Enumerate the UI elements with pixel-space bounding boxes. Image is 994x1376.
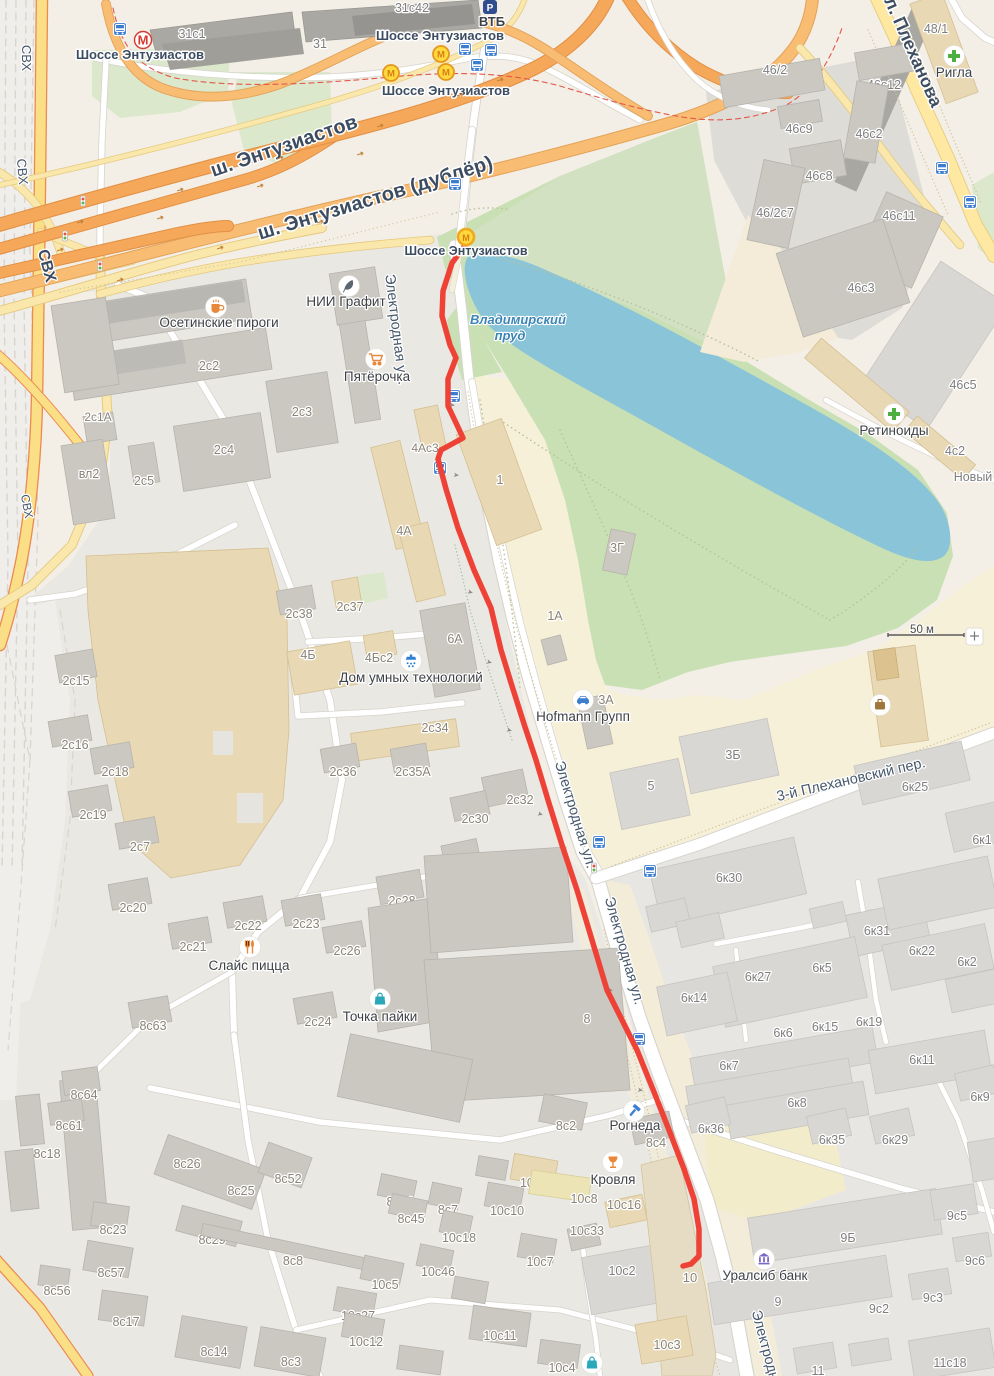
- svg-text:31с42: 31с42: [395, 1, 429, 15]
- svg-text:31: 31: [313, 37, 327, 51]
- svg-text:10с8: 10с8: [570, 1192, 597, 1206]
- svg-text:11: 11: [812, 1364, 825, 1376]
- svg-text:8с8: 8с8: [283, 1254, 303, 1268]
- svg-text:9: 9: [775, 1295, 782, 1309]
- svg-text:2с4: 2с4: [214, 443, 234, 457]
- svg-text:2с37: 2с37: [336, 600, 363, 614]
- svg-text:Шоссе Энтузиастов: Шоссе Энтузиастов: [382, 83, 510, 98]
- svg-text:8с52: 8с52: [274, 1172, 301, 1186]
- svg-text:9с6: 9с6: [965, 1254, 985, 1268]
- svg-text:8: 8: [584, 1012, 591, 1026]
- svg-text:50 м: 50 м: [910, 624, 934, 636]
- svg-text:8с14: 8с14: [200, 1345, 227, 1359]
- svg-text:Точка пайки: Точка пайки: [343, 1009, 418, 1024]
- svg-text:ВТБ: ВТБ: [479, 14, 505, 29]
- svg-text:2с7: 2с7: [130, 840, 150, 854]
- svg-text:2с32: 2с32: [506, 793, 533, 807]
- svg-text:2с20: 2с20: [119, 901, 146, 915]
- svg-text:2с35А: 2с35А: [395, 765, 431, 779]
- svg-text:2с38: 2с38: [285, 607, 312, 621]
- svg-text:6к31: 6к31: [864, 924, 890, 938]
- svg-text:6к22: 6к22: [909, 944, 935, 958]
- svg-text:2с36: 2с36: [329, 765, 356, 779]
- svg-text:10с3: 10с3: [653, 1338, 680, 1352]
- svg-text:Слайс пицца: Слайс пицца: [209, 958, 290, 973]
- svg-text:6к30: 6к30: [716, 871, 742, 885]
- svg-text:6к2: 6к2: [957, 955, 976, 969]
- svg-text:6к6: 6к6: [773, 1026, 792, 1040]
- svg-text:Шоссе Энтузиастов: Шоссе Энтузиастов: [76, 47, 204, 62]
- svg-text:6к19: 6к19: [856, 1015, 882, 1029]
- svg-text:2с22: 2с22: [234, 919, 261, 933]
- svg-text:1А: 1А: [547, 609, 563, 623]
- svg-text:М: М: [387, 69, 395, 80]
- svg-text:8с18: 8с18: [33, 1147, 60, 1161]
- svg-text:10: 10: [683, 1270, 697, 1285]
- svg-text:46с3: 46с3: [847, 281, 874, 295]
- svg-text:10с16: 10с16: [607, 1198, 641, 1212]
- svg-text:Осетинские пироги: Осетинские пироги: [159, 315, 278, 330]
- svg-text:4с2: 4с2: [945, 444, 965, 458]
- svg-text:пруд: пруд: [495, 328, 526, 343]
- svg-text:46/2: 46/2: [763, 63, 787, 77]
- svg-text:6к14: 6к14: [681, 991, 707, 1005]
- svg-text:М: М: [442, 68, 450, 79]
- svg-text:6к5: 6к5: [812, 961, 831, 975]
- svg-text:10с7: 10с7: [526, 1255, 553, 1269]
- svg-text:Hofmann Групп: Hofmann Групп: [536, 709, 630, 724]
- svg-text:6к8: 6к8: [787, 1096, 806, 1110]
- svg-text:8с56: 8с56: [43, 1284, 70, 1298]
- svg-text:46с2: 46с2: [855, 127, 882, 141]
- svg-text:8с57: 8с57: [97, 1266, 124, 1280]
- svg-text:2с18: 2с18: [101, 765, 128, 779]
- svg-text:3Г: 3Г: [610, 541, 624, 555]
- svg-text:6к7: 6к7: [719, 1059, 738, 1073]
- svg-text:46с9: 46с9: [785, 122, 812, 136]
- svg-text:9Б: 9Б: [840, 1231, 855, 1245]
- svg-text:6к1: 6к1: [972, 833, 991, 847]
- svg-text:Ретиноиды: Ретиноиды: [859, 423, 928, 438]
- svg-text:М: М: [437, 50, 445, 61]
- svg-text:Дом умных технологий: Дом умных технологий: [339, 670, 483, 685]
- svg-text:8с4: 8с4: [646, 1136, 666, 1150]
- svg-text:10с46: 10с46: [421, 1265, 455, 1279]
- svg-text:48/1: 48/1: [924, 22, 948, 36]
- svg-text:М: М: [138, 33, 149, 48]
- svg-text:9с3: 9с3: [923, 1291, 943, 1305]
- svg-text:6к11: 6к11: [909, 1053, 934, 1067]
- svg-text:10с10: 10с10: [490, 1204, 524, 1218]
- svg-text:8с17: 8с17: [112, 1315, 139, 1329]
- svg-text:6к9: 6к9: [970, 1090, 989, 1104]
- svg-text:10с33: 10с33: [570, 1224, 604, 1238]
- svg-text:8с23: 8с23: [99, 1223, 126, 1237]
- svg-text:3Б: 3Б: [725, 748, 740, 762]
- svg-text:2с16: 2с16: [61, 738, 88, 752]
- svg-text:2с15: 2с15: [62, 674, 89, 688]
- svg-text:8с26: 8с26: [173, 1157, 200, 1171]
- svg-text:Пятёрочка: Пятёрочка: [344, 369, 411, 384]
- svg-text:Владимирский: Владимирский: [470, 312, 566, 327]
- svg-text:8с25: 8с25: [227, 1184, 254, 1198]
- svg-text:2с23: 2с23: [292, 917, 319, 931]
- svg-text:4Бс2: 4Бс2: [365, 651, 393, 665]
- svg-text:М: М: [462, 233, 470, 243]
- svg-text:4Б: 4Б: [300, 648, 315, 662]
- svg-text:10с18: 10с18: [442, 1231, 476, 1245]
- svg-text:46с11: 46с11: [882, 209, 915, 223]
- svg-text:10с5: 10с5: [371, 1278, 398, 1292]
- svg-text:2с19: 2с19: [79, 808, 106, 822]
- svg-text:4А: 4А: [396, 524, 412, 538]
- svg-text:СВХ: СВХ: [19, 45, 34, 71]
- svg-text:6к36: 6к36: [698, 1122, 724, 1136]
- svg-text:8с61: 8с61: [55, 1119, 82, 1133]
- svg-text:2с3: 2с3: [292, 405, 312, 419]
- svg-text:2с26: 2с26: [333, 944, 360, 958]
- svg-text:Уралсиб банк: Уралсиб банк: [723, 1268, 808, 1283]
- svg-text:2с30: 2с30: [461, 812, 488, 826]
- svg-text:Шоссе Энтузиастов: Шоссе Энтузиастов: [376, 28, 504, 43]
- svg-text:46/2с7: 46/2с7: [756, 206, 794, 220]
- svg-text:Рогнеда: Рогнеда: [610, 1118, 661, 1133]
- svg-text:10с11: 10с11: [483, 1329, 516, 1343]
- svg-text:10с4: 10с4: [548, 1361, 575, 1375]
- svg-text:10с2: 10с2: [608, 1264, 635, 1278]
- svg-text:Новый: Новый: [954, 470, 993, 484]
- svg-text:НИИ Графит: НИИ Графит: [306, 294, 385, 309]
- svg-text:6к35: 6к35: [819, 1133, 845, 1147]
- svg-text:4Ас3: 4Ас3: [411, 441, 439, 455]
- svg-text:2с1А: 2с1А: [84, 410, 111, 424]
- svg-text:9с2: 9с2: [869, 1302, 889, 1316]
- svg-text:46с5: 46с5: [949, 378, 976, 392]
- svg-text:6к15: 6к15: [812, 1020, 838, 1034]
- svg-text:6к27: 6к27: [745, 970, 771, 984]
- svg-text:Р: Р: [487, 3, 494, 14]
- svg-text:2с21: 2с21: [179, 940, 206, 954]
- svg-text:2с2: 2с2: [199, 359, 219, 373]
- svg-text:2с5: 2с5: [134, 474, 154, 488]
- svg-text:6к25: 6к25: [902, 780, 928, 794]
- svg-text:10с12: 10с12: [349, 1335, 383, 1349]
- svg-text:2с34: 2с34: [421, 721, 448, 735]
- svg-text:5: 5: [648, 779, 655, 793]
- svg-text:2с24: 2с24: [304, 1015, 331, 1029]
- svg-text:3А: 3А: [598, 693, 614, 707]
- svg-text:11с18: 11с18: [933, 1356, 966, 1370]
- svg-text:46с8: 46с8: [805, 169, 832, 183]
- svg-text:вл2: вл2: [79, 467, 100, 481]
- svg-text:Ригла: Ригла: [936, 65, 973, 80]
- svg-text:9с5: 9с5: [947, 1209, 967, 1223]
- svg-text:8с63: 8с63: [139, 1019, 166, 1033]
- svg-text:8с45: 8с45: [397, 1212, 424, 1226]
- svg-text:31с1: 31с1: [178, 27, 205, 41]
- svg-text:1: 1: [497, 473, 504, 487]
- svg-text:6к29: 6к29: [882, 1133, 908, 1147]
- svg-text:Кровля: Кровля: [591, 1172, 636, 1187]
- svg-text:Шоссе Энтузиастов: Шоссе Энтузиастов: [404, 244, 527, 258]
- svg-text:6А: 6А: [447, 632, 463, 646]
- svg-text:СВХ: СВХ: [14, 158, 31, 186]
- svg-text:8с2: 8с2: [556, 1119, 576, 1133]
- svg-text:8с3: 8с3: [281, 1355, 301, 1369]
